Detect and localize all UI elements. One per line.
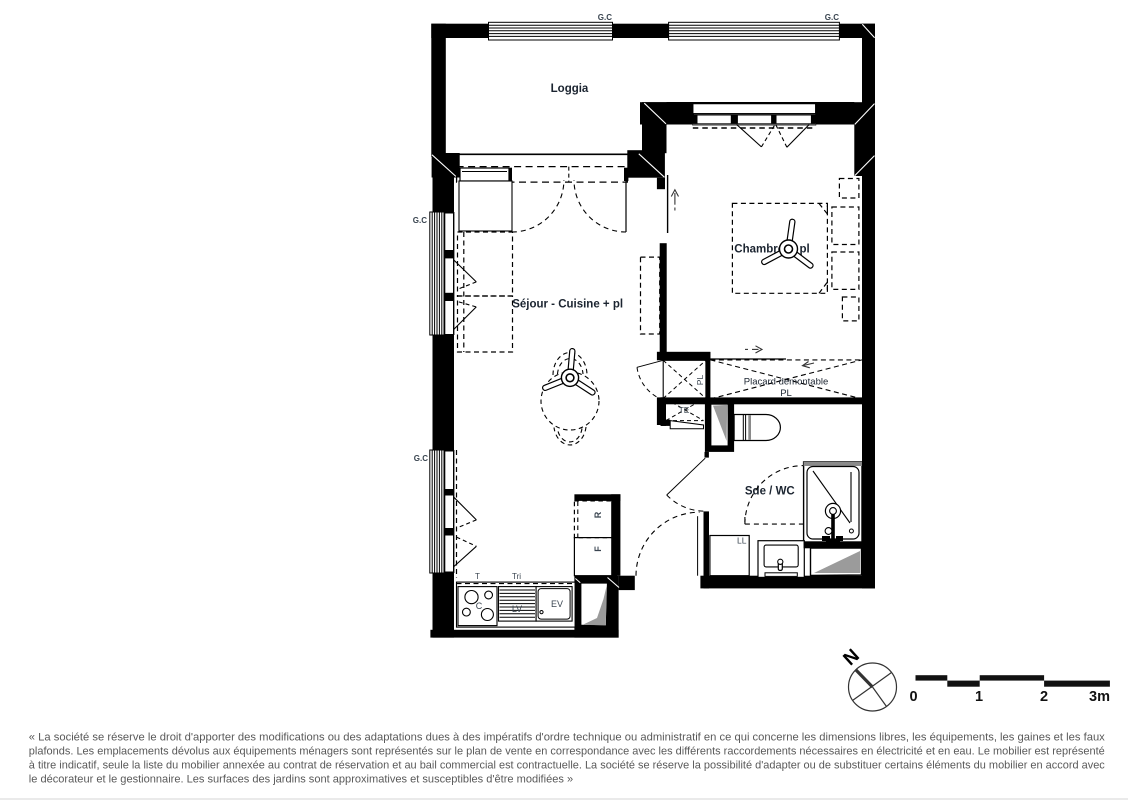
svg-text:TE: TE	[679, 405, 690, 415]
svg-text:G.C: G.C	[598, 13, 612, 22]
svg-text:Loggia: Loggia	[551, 83, 589, 95]
svg-text:C: C	[476, 601, 483, 611]
svg-text:G.C: G.C	[413, 216, 427, 225]
svg-text:3m: 3m	[1089, 689, 1110, 705]
svg-text:pl: pl	[800, 244, 810, 256]
svg-text:PL: PL	[695, 375, 705, 386]
svg-text:LV: LV	[512, 604, 522, 614]
svg-text:G.C: G.C	[414, 454, 428, 463]
svg-text:LL: LL	[737, 536, 747, 546]
svg-text:plafonds. Les emplacements dév: plafonds. Les emplacements dévolus aux é…	[29, 746, 1105, 758]
svg-text:F: F	[593, 546, 603, 552]
svg-text:PL: PL	[780, 388, 792, 399]
svg-text:le décorateur et le gestionnai: le décorateur et le gestionnaire. Les su…	[29, 773, 573, 785]
svg-text:EV: EV	[551, 599, 563, 609]
svg-text:à titre indicatif, seule la li: à titre indicatif, seule la liste du mob…	[29, 760, 1105, 772]
svg-text:G.C: G.C	[825, 13, 839, 22]
svg-text:T: T	[475, 572, 480, 581]
svg-text:Séjour - Cuisine + pl: Séjour - Cuisine + pl	[512, 298, 623, 310]
svg-text:1: 1	[975, 689, 983, 705]
svg-text:Tri: Tri	[512, 572, 521, 581]
svg-text:0: 0	[909, 689, 917, 705]
svg-text:Placard démontable: Placard démontable	[744, 376, 829, 387]
svg-text:2: 2	[1040, 689, 1048, 705]
svg-text:« La société se réserve le dro: « La société se réserve le droit d'appor…	[29, 732, 1105, 744]
svg-text:R: R	[593, 511, 603, 518]
